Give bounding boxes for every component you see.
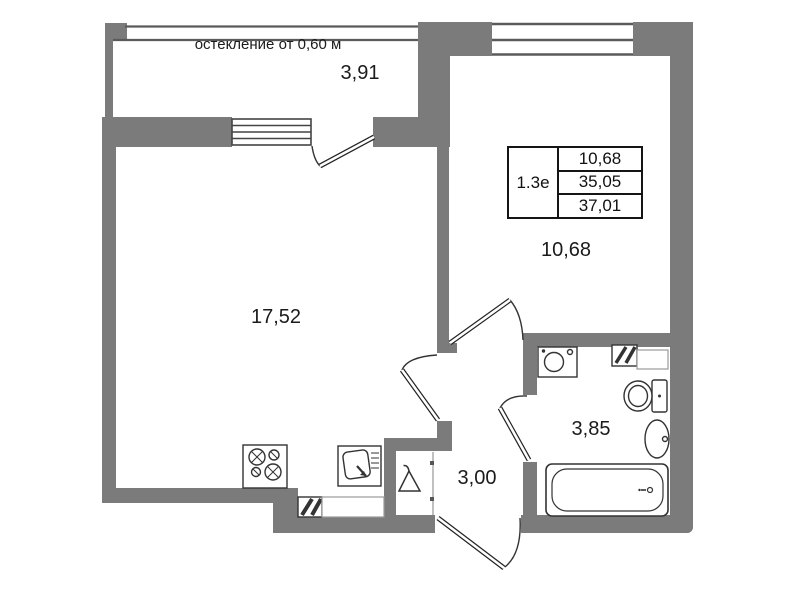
- room-label-hallway: 3,00: [450, 467, 504, 489]
- hanger-icon: [399, 452, 434, 515]
- unit-area-cell-3: 37,01: [558, 194, 642, 218]
- washing-machine-icon: [538, 347, 577, 377]
- basin-icon: [645, 420, 669, 458]
- stove-icon: [243, 445, 287, 488]
- floor-plan-canvas: остекление от 0,60 м 3,91 17,52 10,68 3,…: [0, 0, 799, 600]
- balcony-door: [312, 137, 374, 166]
- room-label-living-kitchen: 17,52: [244, 306, 308, 328]
- unit-area-cell-2: 35,05: [558, 171, 642, 195]
- unit-stamp-table: 1.3е 10,68 35,05 37,01: [507, 146, 643, 219]
- entrance-door: [438, 518, 520, 568]
- vent-hatch-icon: [612, 345, 668, 369]
- unit-type-cell: 1.3е: [508, 147, 558, 218]
- plan-linework: [0, 0, 799, 600]
- room-label-bathroom: 3,85: [564, 418, 618, 440]
- bathroom-door: [500, 396, 529, 460]
- bedroom-window-icon: [492, 24, 633, 55]
- bedroom-door: [450, 300, 523, 343]
- living-room-door: [402, 355, 438, 420]
- bathtub-icon: [546, 464, 668, 516]
- room-label-bedroom: 10,68: [534, 239, 598, 261]
- room-label-balcony: 3,91: [334, 62, 386, 84]
- vent-hatch-icon: [298, 497, 384, 517]
- living-window-icon: [232, 119, 311, 145]
- glazing-note: остекление от 0,60 м: [186, 36, 350, 53]
- toilet-icon: [624, 380, 667, 412]
- kitchen-sink-icon: [338, 446, 381, 486]
- unit-area-cell-1: 10,68: [558, 147, 642, 171]
